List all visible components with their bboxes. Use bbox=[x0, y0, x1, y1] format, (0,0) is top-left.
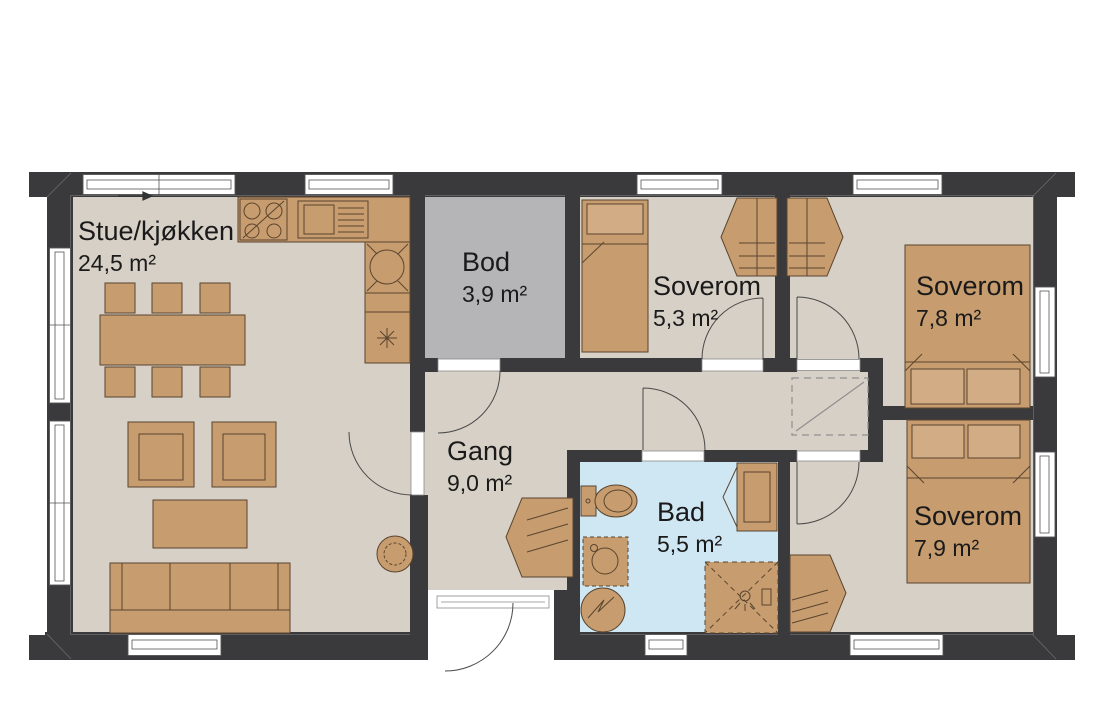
room-label-bad: Bad 5,5 m² bbox=[657, 497, 722, 559]
room-label-stue-kjokken: Stue/kjøkken 24,5 m² bbox=[78, 216, 234, 278]
corner-stub bbox=[1057, 635, 1075, 660]
floor-plan-page: Stue/kjøkken 24,5 m² Bod 3,9 m² Soverom … bbox=[0, 0, 1110, 720]
wood-stove-icon bbox=[377, 536, 413, 572]
chair bbox=[105, 283, 135, 313]
corner-stub bbox=[29, 635, 47, 660]
chair bbox=[105, 367, 135, 397]
dining-set bbox=[100, 283, 245, 397]
room-name: Bod bbox=[462, 247, 527, 278]
shower-icon bbox=[705, 562, 778, 633]
room-label-soverom-3: Soverom 7,9 m² bbox=[914, 501, 1022, 563]
room-area: 7,9 m² bbox=[914, 535, 1022, 563]
window bbox=[305, 175, 393, 195]
door-opening-soverom-1 bbox=[702, 359, 763, 371]
room-name: Stue/kjøkken bbox=[78, 216, 234, 247]
door-opening-soverom-3 bbox=[797, 451, 860, 461]
window bbox=[645, 635, 687, 656]
window bbox=[49, 248, 71, 403]
armchair bbox=[128, 422, 194, 487]
room-area: 7,8 m² bbox=[916, 305, 1024, 333]
armchair bbox=[212, 422, 276, 487]
floor-plan-drawing bbox=[0, 0, 1110, 720]
water-heater-icon bbox=[581, 588, 625, 632]
room-area: 3,9 m² bbox=[462, 281, 527, 309]
door-opening-stue bbox=[411, 432, 424, 495]
door-opening-bod bbox=[438, 359, 500, 371]
room-area: 5,3 m² bbox=[653, 305, 761, 333]
window bbox=[853, 175, 942, 195]
window bbox=[83, 174, 235, 195]
room-name: Soverom bbox=[916, 271, 1024, 302]
dining-table bbox=[100, 315, 245, 365]
door-opening-soverom-2 bbox=[797, 360, 860, 371]
window bbox=[49, 421, 71, 585]
window bbox=[637, 175, 722, 195]
room-label-bod: Bod 3,9 m² bbox=[462, 247, 527, 309]
window bbox=[850, 635, 943, 656]
toilet-icon bbox=[581, 485, 637, 517]
coffee-table bbox=[153, 500, 247, 548]
room-area: 5,5 m² bbox=[657, 531, 722, 559]
room-name: Soverom bbox=[914, 501, 1022, 532]
room-name: Bad bbox=[657, 497, 722, 528]
room-name: Soverom bbox=[653, 271, 761, 302]
room-name: Gang bbox=[447, 436, 513, 467]
room-label-soverom-1: Soverom 5,3 m² bbox=[653, 271, 761, 333]
window bbox=[128, 635, 221, 656]
window bbox=[1035, 452, 1055, 537]
corner-stub bbox=[29, 172, 47, 197]
corner-stub bbox=[1057, 172, 1075, 197]
washing-machine-icon bbox=[583, 537, 628, 586]
room-area: 24,5 m² bbox=[78, 250, 234, 278]
room-label-gang: Gang 9,0 m² bbox=[447, 436, 513, 498]
door-opening-bad bbox=[642, 451, 704, 461]
entry-door bbox=[428, 590, 554, 675]
chair bbox=[200, 283, 230, 313]
chair bbox=[152, 283, 182, 313]
sofa bbox=[110, 563, 290, 633]
chair bbox=[200, 367, 230, 397]
room-area: 9,0 m² bbox=[447, 470, 513, 498]
window bbox=[1035, 287, 1055, 377]
chair bbox=[152, 367, 182, 397]
single-bed bbox=[582, 200, 648, 352]
room-label-soverom-2: Soverom 7,8 m² bbox=[916, 271, 1024, 333]
